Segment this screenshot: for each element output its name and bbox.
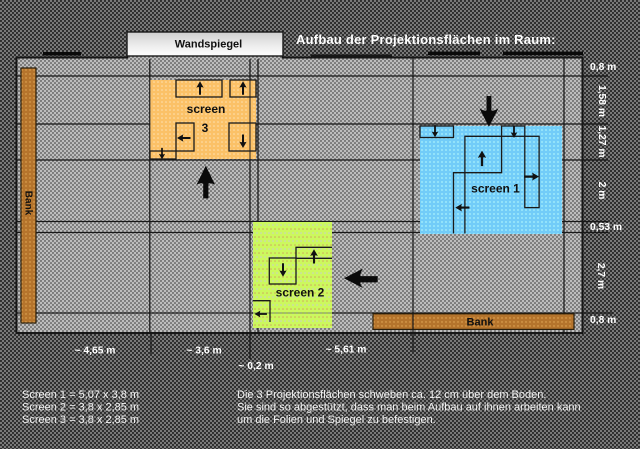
svg-text:Screen 3 = 3,8 x 2,85 m: Screen 3 = 3,8 x 2,85 m	[22, 414, 139, 426]
svg-text:Wandspiegel: Wandspiegel	[175, 39, 242, 51]
svg-text:1,58 m: 1,58 m	[596, 85, 607, 117]
svg-text:Bank: Bank	[467, 317, 495, 329]
svg-text:screen: screen	[187, 102, 226, 116]
svg-text:~ 3,6 m: ~ 3,6 m	[186, 346, 221, 357]
svg-text:Sie sind so abgestützt, dass m: Sie sind so abgestützt, dass man beim Au…	[237, 402, 581, 414]
svg-text:~ 4,65 m: ~ 4,65 m	[75, 346, 116, 357]
svg-text:~ 0,2 m: ~ 0,2 m	[238, 361, 273, 372]
svg-text:0,53 m: 0,53 m	[590, 222, 622, 233]
svg-text:Screen 2 = 3,8 x 2,85 m: Screen 2 = 3,8 x 2,85 m	[22, 402, 139, 414]
svg-text:screen 1: screen 1	[471, 182, 520, 196]
svg-text:2 m: 2 m	[596, 182, 607, 200]
svg-text:Die 3 Projektionsflächen schwe: Die 3 Projektionsflächen schweben ca. 12…	[237, 389, 546, 401]
svg-text:3: 3	[202, 121, 209, 135]
svg-text:0,8 m: 0,8 m	[590, 315, 616, 326]
svg-text:screen 2: screen 2	[276, 286, 325, 300]
svg-text:1,27 m: 1,27 m	[596, 125, 607, 157]
svg-text:2,7 m: 2,7 m	[595, 263, 606, 289]
svg-text:0,8 m: 0,8 m	[590, 62, 616, 73]
svg-text:Screen 1 = 5,07 x 3,8 m: Screen 1 = 5,07 x 3,8 m	[22, 389, 139, 401]
svg-text:~ 5,61 m: ~ 5,61 m	[326, 345, 367, 356]
svg-text:Aufbau der Projektionsflächen: Aufbau der Projektionsflächen im Raum:	[296, 32, 556, 47]
svg-text:um die Folien und Spiegel zu b: um die Folien und Spiegel zu befestigen.	[237, 414, 436, 426]
svg-text:Bank: Bank	[23, 191, 34, 216]
